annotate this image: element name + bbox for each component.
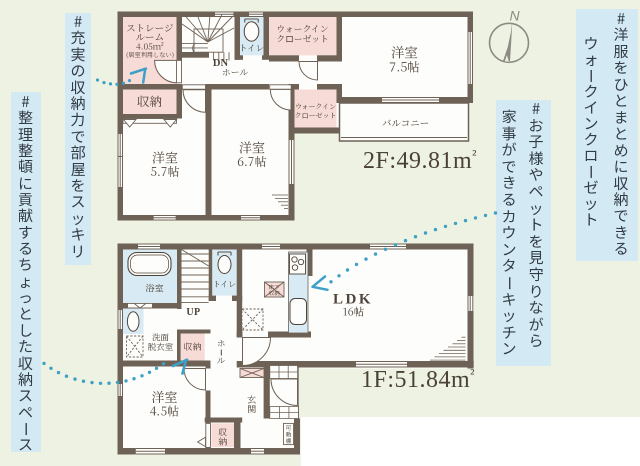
svg-text:5.7帖: 5.7帖	[150, 163, 179, 180]
svg-text:6.7帖: 6.7帖	[237, 153, 266, 170]
svg-text:クローゼット: クローゼット	[276, 32, 328, 45]
svg-text:収納: 収納	[137, 92, 162, 110]
svg-text:1F:51.84m²: 1F:51.84m²	[361, 367, 475, 394]
svg-text:ホ: ホ	[217, 338, 226, 350]
svg-text:浴室: 浴室	[145, 282, 163, 295]
svg-text:関: 関	[247, 403, 256, 416]
svg-text:4.5帖: 4.5帖	[150, 403, 179, 420]
svg-text:2F:49.81m²: 2F:49.81m²	[363, 148, 477, 175]
svg-text:16帖: 16帖	[343, 305, 365, 320]
svg-text:ホール: ホール	[222, 66, 249, 79]
svg-text:ル: ル	[217, 355, 226, 367]
svg-text:トイレ: トイレ	[213, 279, 237, 290]
svg-text:収納: 収納	[269, 289, 280, 297]
svg-text:脱衣室: 脱衣室	[148, 341, 174, 353]
svg-text:収納: 収納	[183, 340, 202, 353]
svg-text:UP: UP	[186, 307, 200, 318]
svg-text:バルコニー: バルコニー	[382, 116, 430, 130]
svg-text:棚: 棚	[286, 437, 292, 445]
svg-text:7.5帖: 7.5帖	[389, 58, 420, 76]
svg-text:納: 納	[218, 435, 228, 448]
svg-text:トイレ: トイレ	[239, 42, 264, 54]
svg-text:(居室利用しない): (居室利用しない)	[126, 50, 174, 59]
svg-text:N: N	[509, 8, 520, 24]
svg-text:クローゼット: クローゼット	[295, 111, 337, 121]
